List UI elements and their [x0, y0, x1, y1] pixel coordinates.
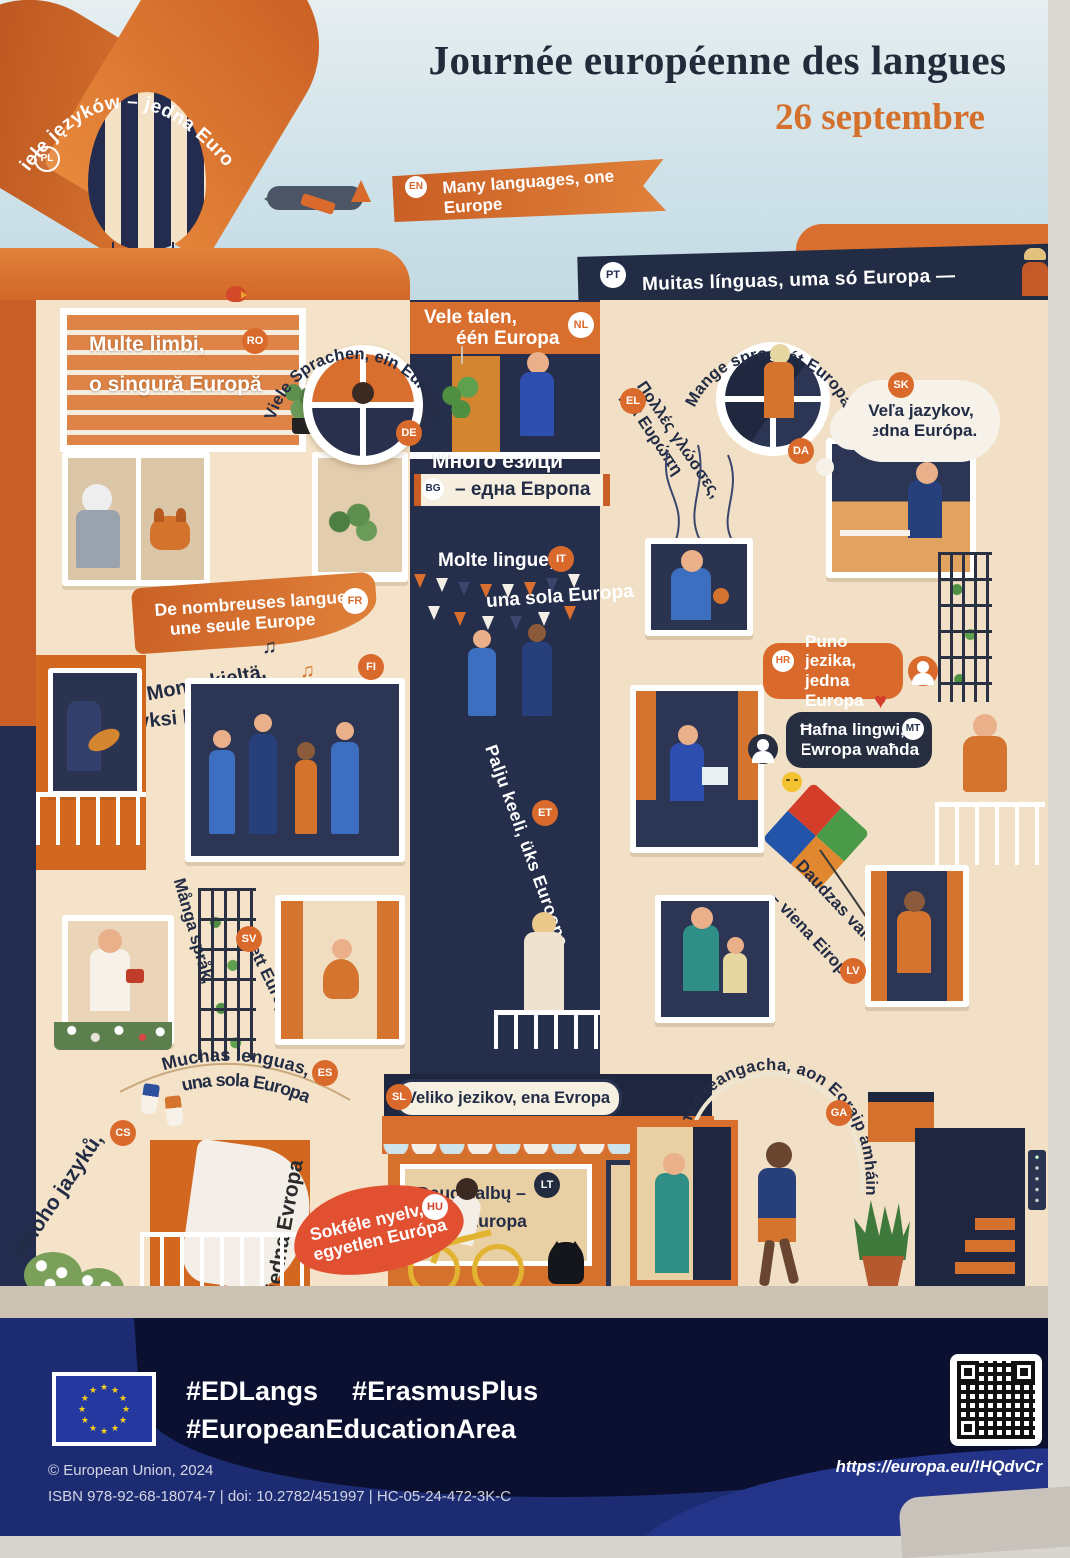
- hashtag-erasmusplus: #ErasmusPlus: [352, 1376, 538, 1406]
- ro-phrase-line2: o singură Europă: [89, 373, 262, 397]
- meditating-woman-figure: [323, 959, 359, 999]
- svg-text:Viele Sprachen, ein Europa,: Viele Sprachen, ein Europa,: [261, 345, 448, 422]
- hashtag-europeaneducationarea: #EuropeanEducationArea: [186, 1414, 516, 1444]
- eu-star-icon: ★: [77, 1404, 87, 1414]
- qr-finder-pattern: [957, 1361, 979, 1383]
- relieved-emoji-icon: [782, 772, 802, 792]
- qr-finder-pattern: [1013, 1361, 1035, 1383]
- curtain: [947, 871, 963, 1001]
- skipping-boy-head: [766, 1142, 792, 1168]
- el-language-badge: EL: [620, 388, 646, 414]
- eu-star-icon: ★: [121, 1404, 131, 1414]
- mother-figure: [655, 1173, 689, 1273]
- sock-icon: [164, 1095, 183, 1127]
- knitting-window: [645, 538, 753, 636]
- terracotta-pot: [862, 1256, 904, 1288]
- sk-man-figure: [908, 480, 942, 538]
- old-man-body: [76, 510, 120, 568]
- curtain: [636, 691, 656, 800]
- fr-language-badge: FR: [342, 588, 368, 614]
- dancer-head: [254, 714, 272, 732]
- dancer-head: [528, 624, 546, 642]
- knitting-head: [681, 550, 703, 572]
- mother-head: [663, 1153, 685, 1175]
- dancer-figure: [468, 648, 496, 716]
- eu-star-icon: ★: [118, 1393, 128, 1403]
- eu-star-icon: ★: [99, 1426, 109, 1436]
- hashtags-row2: #EuropeanEducationArea: [186, 1414, 516, 1445]
- lt-language-badge: LT: [534, 1172, 560, 1198]
- pl-language-badge: PL: [34, 146, 60, 172]
- dancer-figure: [209, 750, 235, 834]
- sl-phrase: Veliko jezikov, ena Evropa: [406, 1089, 610, 1108]
- de-language-badge: DE: [396, 420, 422, 446]
- sk-language-badge: SK: [888, 372, 914, 398]
- airplane-icon: [255, 168, 385, 223]
- ro-language-badge: RO: [242, 328, 268, 354]
- mother-head: [691, 907, 713, 929]
- poster-left-edge-orange: [0, 300, 36, 730]
- sidewalk: [0, 1286, 1070, 1318]
- door-buzzer-panel: [1028, 1150, 1046, 1210]
- hr-phrase-line2: jedna Europa: [805, 671, 903, 710]
- phone-woman-figure: [963, 736, 1007, 792]
- drinking-woman-window: [865, 865, 969, 1007]
- hu-language-badge: HU: [422, 1194, 448, 1220]
- laptop-person-figure: [670, 743, 704, 801]
- balcony-man-figure: [520, 372, 554, 436]
- vine-trellis: [938, 552, 992, 702]
- es-language-badge: ES: [312, 1060, 338, 1086]
- ga-doorway: [630, 1120, 738, 1287]
- copyright-text: © European Union, 2024: [48, 1462, 213, 1479]
- dancer-head: [336, 722, 354, 740]
- wall-background: [898, 1486, 1070, 1558]
- hr-phrase-line1: Puno jezika,: [805, 632, 903, 671]
- watering-woman-figure: [90, 949, 130, 1011]
- wall-background: [1048, 0, 1070, 1536]
- mother-child-window: [655, 895, 775, 1023]
- mt-phrase-line2: Ewropa waħda: [800, 740, 932, 760]
- bg-language-badge: BG: [422, 478, 444, 500]
- dancer-figure: [522, 642, 552, 716]
- window-divider: [136, 458, 141, 580]
- dancer-head: [297, 742, 315, 760]
- drinking-woman-figure: [897, 911, 931, 973]
- dancer-figure: [249, 734, 277, 834]
- houseplant-icon: [326, 502, 380, 546]
- sl-language-badge: SL: [386, 1084, 412, 1110]
- phone-woman-head: [973, 714, 997, 738]
- door-opening: [693, 1127, 731, 1280]
- party-window: [185, 678, 405, 862]
- eu-star-icon: ★: [80, 1415, 90, 1425]
- yarn-ball-icon: [713, 588, 729, 604]
- stair-step: [955, 1262, 1015, 1274]
- mother-figure: [683, 925, 719, 991]
- person-hat: [1024, 248, 1046, 260]
- sk-thought-cloud: Veľa jazykov, jedna Európa.: [842, 380, 1000, 462]
- curtain: [871, 871, 887, 1001]
- old-man-window: [62, 452, 210, 586]
- mt-language-badge: MT: [902, 718, 924, 740]
- dancer-figure: [295, 760, 317, 834]
- pl-curved-text: Wiele języków – jedna Europa: [0, 40, 270, 210]
- nl-language-badge: NL: [568, 312, 594, 338]
- et-woman-figure: [524, 932, 564, 1010]
- eu-star-icon: ★: [110, 1423, 120, 1433]
- curtain: [377, 901, 399, 1039]
- ga-language-badge: GA: [826, 1100, 852, 1126]
- child-head: [727, 937, 744, 954]
- stair-step: [975, 1218, 1015, 1230]
- de-woman-figure: [352, 382, 374, 404]
- guitar-man-window: [48, 668, 142, 796]
- user-avatar-icon: [908, 656, 938, 686]
- lv-language-badge: LV: [840, 958, 866, 984]
- poster-title: Journée européenne des langues: [385, 36, 1050, 84]
- user-avatar-icon: [748, 734, 778, 764]
- dancer-head: [473, 630, 491, 648]
- heart-icon: ♥: [874, 688, 887, 714]
- cs-language-badge: CS: [110, 1120, 136, 1146]
- qr-pattern: [957, 1361, 1035, 1439]
- sk-man-head: [916, 462, 938, 484]
- campaign-url: https://europa.eu/!HQdvCr: [820, 1458, 1042, 1477]
- bg-phrase-line1: Много езици: [432, 450, 563, 474]
- balcony-railing: [140, 1232, 316, 1293]
- ro-phrase-line1: Multe limbi,: [89, 333, 205, 357]
- music-note-icon: ♫: [262, 636, 277, 659]
- watering-jug-icon: [126, 969, 144, 983]
- dog-icon: [150, 516, 190, 550]
- drinking-woman-head: [904, 891, 925, 912]
- hanging-plant-icon: [438, 362, 484, 418]
- person-body: [1022, 262, 1048, 296]
- balcony-railing: [494, 1010, 600, 1049]
- watering-woman-head: [98, 929, 122, 953]
- nl-phrase-line2: één Europa: [456, 328, 559, 350]
- knitting-figure: [671, 568, 711, 620]
- skipping-boy-shorts: [758, 1218, 796, 1242]
- bg-phrase-line2: – една Европа: [455, 479, 590, 501]
- eu-flag: ★ ★ ★ ★ ★ ★ ★ ★ ★ ★ ★ ★: [52, 1372, 156, 1446]
- bird-icon: [226, 286, 246, 302]
- da-man-figure: [764, 362, 794, 418]
- balcony-railing: [36, 792, 146, 845]
- fi-language-badge: FI: [358, 654, 384, 680]
- sk-phrase-line2: jedna Európa.: [865, 421, 977, 441]
- hashtag-edlangs: #EDLangs: [186, 1376, 318, 1406]
- eu-star-icon: ★: [99, 1382, 109, 1392]
- it-language-badge: IT: [548, 546, 574, 572]
- meditation-window: [275, 895, 405, 1045]
- eu-star-icon: ★: [88, 1385, 98, 1395]
- qr-code: [950, 1354, 1042, 1446]
- black-cat-icon: [548, 1242, 584, 1284]
- da-man-head: [770, 344, 790, 364]
- laptop-person-head: [678, 725, 698, 745]
- hashtags-row1: #EDLangs#ErasmusPlus: [186, 1376, 538, 1407]
- sl-shop-sign: Veliko jezikov, ena Evropa: [394, 1079, 622, 1118]
- balcony-man-head: [527, 352, 549, 374]
- stair-step: [965, 1240, 1015, 1252]
- publication-identifiers: ISBN 978-92-68-18074-7 | doi: 10.2782/45…: [48, 1488, 511, 1505]
- hr-language-badge: HR: [772, 650, 794, 672]
- dancer-head: [213, 730, 231, 748]
- et-language-badge: ET: [532, 800, 558, 826]
- meditating-woman-head: [332, 939, 352, 959]
- sv-language-badge: SV: [236, 926, 262, 952]
- sk-phrase-line1: Veľa jazykov,: [868, 401, 973, 421]
- nl-phrase-line1: Vele talen,: [424, 307, 517, 329]
- en-language-badge: EN: [405, 176, 427, 198]
- curtain: [281, 901, 303, 1039]
- bunting-flags: [410, 568, 600, 628]
- pt-language-badge: PT: [600, 262, 626, 288]
- de-phrase: Viele Sprachen, ein Europa,: [261, 345, 448, 422]
- poster-date: 26 septembre: [720, 96, 1040, 139]
- en-phrase: Many languages, one Europe: [442, 163, 666, 217]
- laptop-window: [630, 685, 764, 853]
- table: [840, 530, 910, 536]
- da-language-badge: DA: [788, 438, 814, 464]
- child-figure: [723, 953, 747, 993]
- poster-photo: { "header": { "title": "Journée européen…: [0, 0, 1070, 1536]
- laptop-screen: [702, 767, 728, 785]
- qr-finder-pattern: [957, 1417, 979, 1439]
- plane-tail: [351, 170, 371, 202]
- dancer-figure: [331, 742, 359, 834]
- skipping-boy-figure: [758, 1168, 796, 1222]
